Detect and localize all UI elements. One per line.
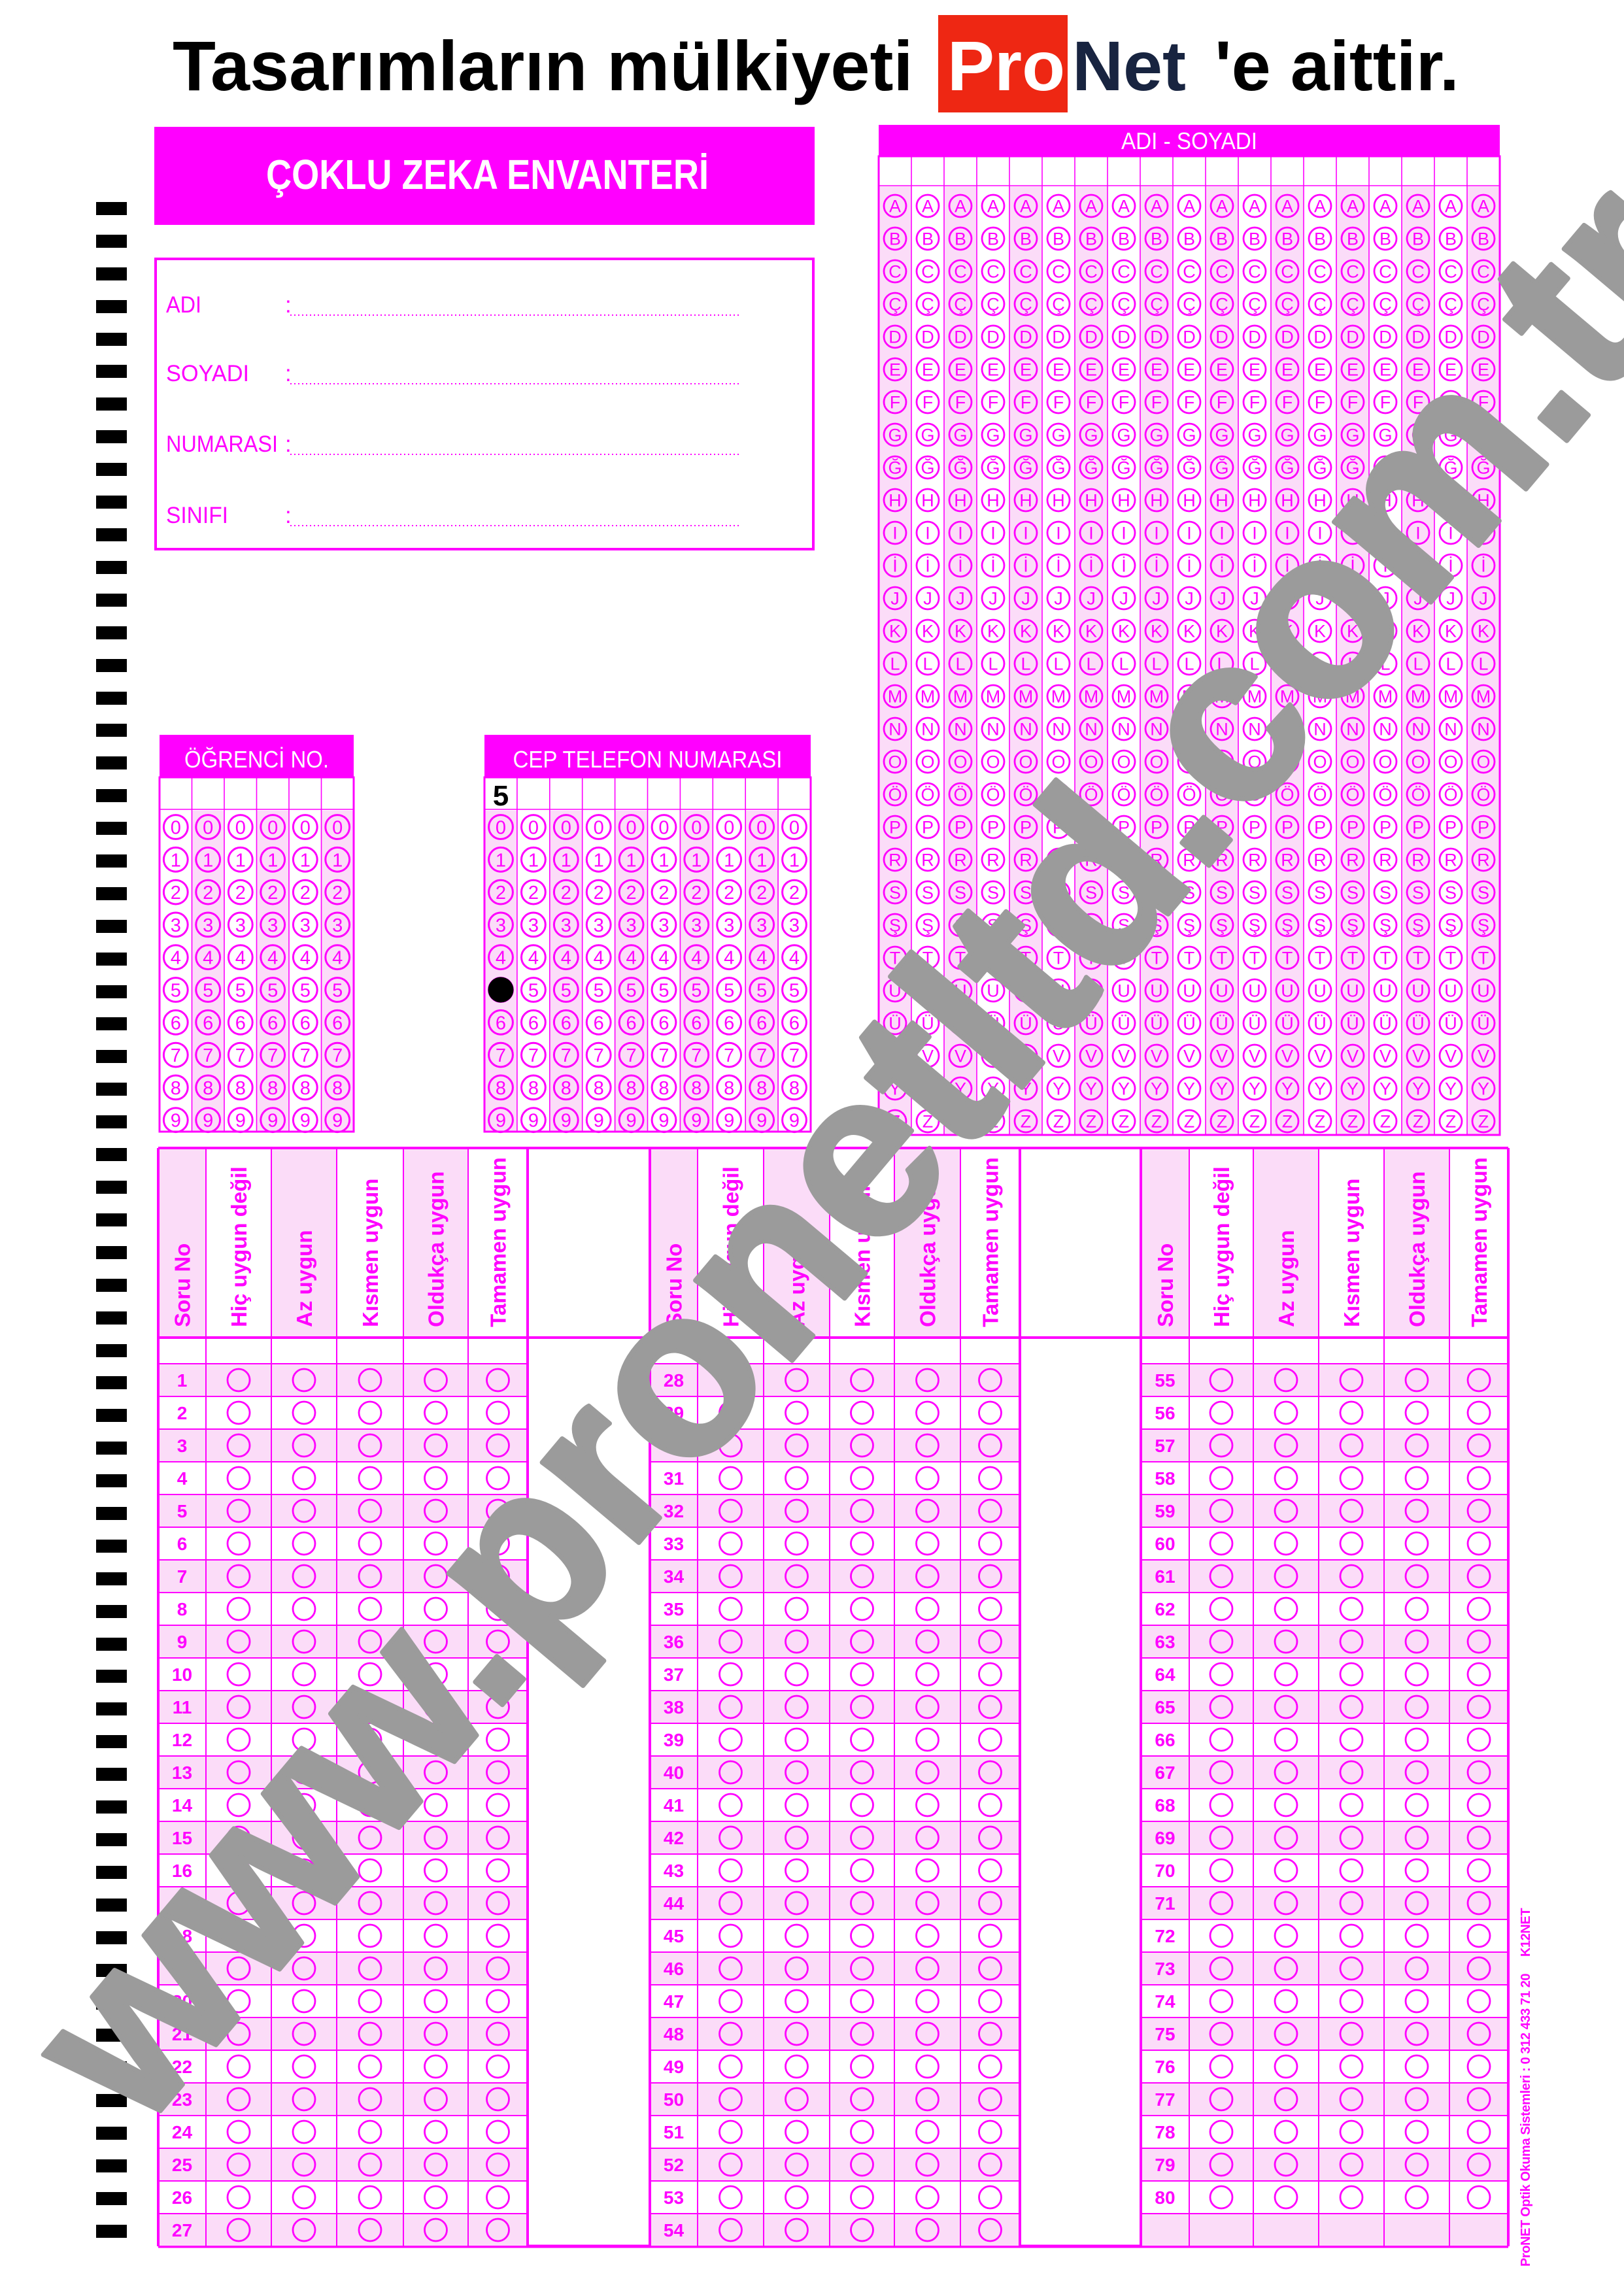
svg-text:K: K (1053, 622, 1064, 641)
svg-text::: : (285, 431, 292, 457)
svg-text:V: V (1151, 1047, 1162, 1066)
svg-text:26: 26 (172, 2187, 192, 2208)
svg-text:3: 3 (626, 915, 637, 936)
svg-text:7: 7 (594, 1045, 604, 1066)
svg-text:C: C (1346, 262, 1359, 282)
svg-text:O: O (1411, 752, 1425, 772)
svg-text:Z: Z (1184, 1112, 1195, 1132)
svg-text:Ç: Ç (1019, 295, 1032, 314)
svg-text:2: 2 (177, 1403, 188, 1423)
svg-text:I: I (1154, 524, 1159, 543)
svg-text:L: L (988, 654, 998, 674)
svg-text:7: 7 (724, 1045, 734, 1066)
svg-text:Ş: Ş (1281, 916, 1293, 936)
svg-text:S: S (1314, 883, 1326, 903)
svg-text:A: A (1281, 197, 1293, 216)
svg-text:Ö: Ö (1378, 785, 1392, 805)
svg-text:I: I (990, 524, 996, 543)
svg-text:A: A (1118, 197, 1130, 216)
svg-text:6: 6 (496, 1013, 506, 1034)
svg-text:H: H (1150, 491, 1163, 511)
svg-text:A: A (1379, 197, 1391, 216)
svg-text:50: 50 (664, 2089, 684, 2110)
svg-text:Z: Z (1446, 1112, 1457, 1132)
svg-text:T: T (1217, 949, 1228, 968)
svg-text:9: 9 (691, 1111, 702, 1132)
svg-text:D: D (921, 328, 934, 347)
svg-text:U: U (1313, 981, 1327, 1001)
svg-text:47: 47 (664, 1991, 684, 2012)
svg-text:0: 0 (626, 818, 637, 839)
svg-text:U: U (1379, 981, 1392, 1001)
svg-text:Ö: Ö (921, 785, 934, 805)
svg-text:4: 4 (528, 948, 539, 969)
svg-text:B: B (1347, 229, 1359, 249)
svg-text:7: 7 (561, 1045, 571, 1066)
svg-text:39: 39 (664, 1730, 684, 1750)
svg-text:Ö: Ö (1476, 785, 1490, 805)
svg-text:SOYADI: SOYADI (166, 361, 249, 386)
svg-text:E: E (889, 360, 901, 380)
svg-text:T: T (1413, 949, 1424, 968)
svg-text:C: C (1379, 262, 1392, 282)
svg-text:U: U (1477, 981, 1490, 1001)
svg-text:1: 1 (528, 850, 539, 871)
svg-text:7: 7 (626, 1045, 637, 1066)
svg-text:80: 80 (1155, 2187, 1175, 2208)
svg-text:62: 62 (1155, 1599, 1175, 1619)
svg-text:D: D (1117, 328, 1130, 347)
svg-text:Ğ: Ğ (1051, 458, 1065, 478)
svg-text:H: H (1215, 491, 1228, 511)
svg-text:9: 9 (203, 1111, 213, 1132)
svg-text:L: L (1021, 654, 1030, 674)
svg-text:G: G (986, 426, 1000, 445)
svg-text:4: 4 (691, 948, 702, 969)
svg-text:H: H (1183, 491, 1196, 511)
svg-text:D: D (1248, 328, 1261, 347)
svg-text:8: 8 (594, 1078, 604, 1099)
svg-text:D: D (1215, 328, 1228, 347)
svg-text:0: 0 (267, 818, 278, 839)
svg-text:Ü: Ü (1477, 1014, 1490, 1034)
svg-text:Z: Z (1380, 1112, 1391, 1132)
svg-text:5: 5 (658, 981, 669, 1002)
svg-text:Y: Y (1412, 1079, 1424, 1099)
svg-text:L: L (890, 654, 900, 674)
svg-text:0: 0 (171, 818, 181, 839)
svg-text:0: 0 (203, 818, 213, 839)
svg-text:7: 7 (691, 1045, 702, 1066)
svg-text:59: 59 (1155, 1501, 1175, 1521)
svg-text:O: O (1378, 752, 1392, 772)
svg-text:Ü: Ü (1150, 1014, 1163, 1034)
svg-text:V: V (1412, 1047, 1424, 1066)
svg-text:78: 78 (1155, 2122, 1175, 2142)
svg-text:K: K (889, 622, 901, 641)
svg-text:79: 79 (1155, 2155, 1175, 2175)
svg-text:7: 7 (177, 1566, 188, 1587)
svg-text:Ğ: Ğ (888, 458, 902, 478)
svg-text:71: 71 (1155, 1893, 1175, 1914)
svg-text:5: 5 (493, 780, 509, 812)
svg-text:6: 6 (756, 1013, 767, 1034)
svg-text:H: H (921, 491, 934, 511)
svg-text:70: 70 (1155, 1861, 1175, 1881)
svg-text:8: 8 (626, 1078, 637, 1099)
svg-text:A: A (955, 197, 966, 216)
svg-text:Net: Net (1072, 26, 1186, 105)
svg-text:O: O (921, 752, 934, 772)
svg-text:72: 72 (1155, 1926, 1175, 1946)
svg-text:Y: Y (1445, 1079, 1457, 1099)
svg-text:Ö: Ö (953, 785, 967, 805)
svg-text:75: 75 (1155, 2024, 1175, 2044)
svg-text:56: 56 (1155, 1403, 1175, 1423)
svg-text:R: R (1444, 851, 1457, 870)
svg-text:Ş: Ş (1347, 916, 1359, 936)
svg-text:1: 1 (561, 850, 571, 871)
svg-text:Tamamen uygun: Tamamen uygun (1467, 1157, 1491, 1327)
svg-text:B: B (1118, 229, 1130, 249)
svg-text:I: I (925, 524, 930, 543)
svg-text:2: 2 (300, 883, 311, 903)
svg-text:J: J (989, 589, 998, 609)
svg-text:A: A (1053, 197, 1064, 216)
svg-text:Ş: Ş (1445, 916, 1457, 936)
svg-text:36: 36 (664, 1632, 684, 1652)
svg-text:44: 44 (664, 1893, 685, 1914)
svg-text:0: 0 (789, 818, 800, 839)
svg-text:3: 3 (267, 915, 278, 936)
svg-text:Ç: Ç (1183, 295, 1196, 314)
svg-text:1: 1 (658, 850, 669, 871)
svg-text:I: I (1187, 524, 1192, 543)
svg-text:B: B (922, 229, 934, 249)
svg-text:D: D (1019, 328, 1032, 347)
svg-text:2: 2 (626, 883, 637, 903)
svg-text:3: 3 (235, 915, 246, 936)
svg-text:ÇOKLU ZEKA ENVANTERİ: ÇOKLU ZEKA ENVANTERİ (266, 151, 709, 198)
svg-text:Y: Y (1118, 1079, 1130, 1099)
svg-text:G: G (1019, 426, 1032, 445)
svg-text:C: C (1183, 262, 1196, 282)
svg-text:C: C (1313, 262, 1327, 282)
svg-text:64: 64 (1155, 1664, 1176, 1685)
svg-text:L: L (955, 654, 965, 674)
svg-text:3: 3 (203, 915, 213, 936)
svg-text:Y: Y (1379, 1079, 1391, 1099)
svg-text:0: 0 (594, 818, 604, 839)
svg-text:J: J (1119, 589, 1128, 609)
svg-text:İ: İ (1121, 556, 1126, 576)
svg-text:C: C (1248, 262, 1261, 282)
svg-text:S: S (1281, 883, 1293, 903)
svg-text:8: 8 (177, 1599, 188, 1619)
svg-text:R: R (1313, 851, 1327, 870)
svg-text:5: 5 (171, 981, 181, 1002)
svg-text:Ş: Ş (1314, 916, 1326, 936)
svg-text:2: 2 (756, 883, 767, 903)
svg-text:D: D (954, 328, 967, 347)
svg-text:38: 38 (664, 1697, 684, 1717)
svg-text:8: 8 (300, 1078, 311, 1099)
svg-text:2: 2 (267, 883, 278, 903)
svg-text:40: 40 (664, 1763, 684, 1783)
svg-text:I: I (1056, 524, 1061, 543)
svg-text:K: K (1020, 622, 1032, 641)
svg-text:1: 1 (691, 850, 702, 871)
svg-text:Ç: Ç (1150, 295, 1163, 314)
svg-text:5: 5 (332, 981, 343, 1002)
svg-text:6: 6 (594, 1013, 604, 1034)
svg-text:Z: Z (1119, 1112, 1130, 1132)
svg-text:7: 7 (203, 1045, 213, 1066)
svg-text:J: J (923, 589, 932, 609)
svg-text:B: B (889, 229, 901, 249)
svg-text:Ğ: Ğ (1117, 458, 1130, 478)
svg-text:2: 2 (724, 883, 734, 903)
svg-text:3: 3 (332, 915, 343, 936)
svg-text:R: R (1412, 851, 1425, 870)
svg-text:Ö: Ö (888, 785, 902, 805)
svg-text:11: 11 (173, 1697, 192, 1717)
svg-text:45: 45 (664, 1926, 684, 1946)
svg-text:İ: İ (1089, 556, 1094, 576)
svg-text:F: F (955, 393, 966, 413)
svg-text:Ç: Ç (1215, 295, 1228, 314)
svg-text:Ü: Ü (1313, 1014, 1327, 1034)
svg-text:F: F (1151, 393, 1162, 413)
svg-text:2: 2 (528, 883, 539, 903)
svg-text:Z: Z (1249, 1112, 1260, 1132)
svg-text:H: H (888, 491, 902, 511)
svg-text:0: 0 (496, 818, 506, 839)
svg-text:G: G (1084, 426, 1098, 445)
svg-text:G: G (953, 426, 967, 445)
svg-text:8: 8 (724, 1078, 734, 1099)
svg-text:B: B (1183, 229, 1195, 249)
svg-text:F: F (1282, 393, 1293, 413)
svg-text:Ü: Ü (1248, 1014, 1261, 1034)
svg-text:K: K (955, 622, 966, 641)
svg-text:8: 8 (203, 1078, 213, 1099)
svg-text:0: 0 (528, 818, 539, 839)
svg-text:J: J (1087, 589, 1096, 609)
svg-text:S: S (1347, 883, 1359, 903)
svg-text:Tasarımların mülkiyeti: Tasarımların mülkiyeti (173, 26, 913, 105)
svg-text:'e aittir.: 'e aittir. (1215, 26, 1459, 105)
svg-text:7: 7 (332, 1045, 343, 1066)
svg-text:B: B (1053, 229, 1064, 249)
svg-text:B: B (1020, 229, 1032, 249)
svg-text:0: 0 (756, 818, 767, 839)
svg-text:8: 8 (171, 1078, 181, 1099)
svg-text:V: V (1478, 1047, 1489, 1066)
svg-text:B: B (987, 229, 999, 249)
svg-text:R: R (888, 851, 902, 870)
svg-text:Ç: Ç (1085, 295, 1098, 314)
svg-text:P: P (1379, 818, 1391, 837)
svg-text:E: E (1085, 360, 1097, 380)
svg-text:5: 5 (203, 981, 213, 1002)
svg-text:9: 9 (658, 1111, 669, 1132)
svg-text:Z: Z (1478, 1112, 1489, 1132)
svg-text:V: V (1379, 1047, 1391, 1066)
svg-text:ADI - SOYADI: ADI - SOYADI (1121, 127, 1257, 154)
svg-text:İ: İ (892, 556, 898, 576)
svg-text:1: 1 (724, 850, 734, 871)
svg-text:E: E (1249, 360, 1260, 380)
svg-text:M: M (1444, 687, 1459, 707)
svg-text:52: 52 (664, 2155, 684, 2175)
svg-text:T: T (1347, 949, 1359, 968)
svg-text:2: 2 (203, 883, 213, 903)
svg-text:R: R (1346, 851, 1359, 870)
svg-text:5: 5 (561, 981, 571, 1002)
svg-text:U: U (1412, 981, 1425, 1001)
svg-text:49: 49 (664, 2057, 684, 2077)
svg-text:8: 8 (267, 1078, 278, 1099)
svg-text:C: C (1281, 262, 1294, 282)
svg-text:5: 5 (594, 981, 604, 1002)
svg-text:F: F (922, 393, 934, 413)
svg-text:Hiç uygun değil: Hiç uygun değil (1210, 1166, 1234, 1327)
svg-text:E: E (1118, 360, 1130, 380)
svg-text:L: L (922, 654, 932, 674)
svg-text:E: E (1020, 360, 1032, 380)
svg-text:J: J (956, 589, 965, 609)
svg-text:60: 60 (1155, 1534, 1175, 1554)
svg-text:G: G (1247, 426, 1261, 445)
svg-text:D: D (1183, 328, 1196, 347)
svg-text:N: N (987, 720, 1000, 739)
svg-text:2: 2 (561, 883, 571, 903)
svg-text:63: 63 (1155, 1632, 1175, 1652)
svg-text:5: 5 (528, 981, 539, 1002)
svg-text:9: 9 (528, 1111, 539, 1132)
svg-text:61: 61 (1155, 1566, 1175, 1587)
svg-text:İ: İ (1023, 556, 1028, 576)
svg-text:İ: İ (958, 556, 963, 576)
svg-text:3: 3 (724, 915, 734, 936)
svg-text:76: 76 (1155, 2057, 1175, 2077)
svg-text:8: 8 (691, 1078, 702, 1099)
svg-text:N: N (1444, 720, 1457, 739)
svg-text:A: A (1445, 197, 1457, 216)
svg-text:Ü: Ü (1215, 1014, 1228, 1034)
svg-text:D: D (1052, 328, 1065, 347)
svg-text:Ç: Ç (1052, 295, 1065, 314)
svg-text:U: U (1215, 981, 1228, 1001)
svg-text:A: A (1412, 197, 1424, 216)
svg-text:H: H (1117, 491, 1130, 511)
svg-text:D: D (1150, 328, 1163, 347)
svg-text:F: F (1184, 393, 1195, 413)
svg-text:O: O (986, 752, 1000, 772)
svg-text:T: T (1282, 949, 1293, 968)
svg-text:9: 9 (561, 1111, 571, 1132)
svg-text:H: H (987, 491, 1000, 511)
svg-text:G: G (888, 426, 902, 445)
svg-text:J: J (1054, 589, 1063, 609)
svg-text:CEP TELEFON NUMARASI: CEP TELEFON NUMARASI (513, 746, 783, 773)
svg-text:55: 55 (1155, 1370, 1175, 1391)
svg-text:4: 4 (561, 948, 571, 969)
svg-text:6: 6 (177, 1534, 188, 1554)
svg-text:V: V (1347, 1047, 1359, 1066)
svg-text:G: G (921, 426, 934, 445)
svg-text:T: T (1446, 949, 1457, 968)
svg-text:O: O (888, 752, 902, 772)
svg-text:9: 9 (626, 1111, 637, 1132)
svg-text:H: H (954, 491, 967, 511)
svg-text:A: A (987, 197, 999, 216)
svg-text:N: N (1412, 720, 1425, 739)
svg-text:4: 4 (177, 1468, 188, 1489)
svg-text:E: E (922, 360, 934, 380)
svg-text:P: P (889, 818, 901, 837)
svg-text:O: O (953, 752, 967, 772)
svg-text:5: 5 (177, 1501, 188, 1521)
svg-text:C: C (954, 262, 967, 282)
svg-text:54: 54 (664, 2220, 685, 2240)
svg-text:F: F (1217, 393, 1228, 413)
svg-text:Tamamen uygun: Tamamen uygun (486, 1157, 511, 1327)
svg-text:2: 2 (332, 883, 343, 903)
svg-text:Ç: Ç (987, 295, 1000, 314)
svg-text:M: M (921, 687, 936, 707)
svg-text:C: C (1085, 262, 1098, 282)
svg-text:E: E (1314, 360, 1326, 380)
svg-text:1: 1 (203, 850, 213, 871)
svg-text:6: 6 (203, 1013, 213, 1034)
svg-text:Oldukça uygun: Oldukça uygun (1405, 1172, 1429, 1327)
svg-text:Z: Z (1217, 1112, 1228, 1132)
svg-text:9: 9 (332, 1111, 343, 1132)
svg-text:Ç: Ç (921, 295, 934, 314)
svg-text:D: D (1281, 328, 1294, 347)
svg-text:Ç: Ç (1248, 295, 1261, 314)
svg-text:0: 0 (332, 818, 343, 839)
svg-text:V: V (1183, 1047, 1195, 1066)
svg-text:Z: Z (1315, 1112, 1326, 1132)
svg-text:1: 1 (626, 850, 637, 871)
svg-text:1: 1 (177, 1370, 188, 1391)
svg-text:4: 4 (626, 948, 637, 969)
svg-text:3: 3 (789, 915, 800, 936)
svg-text:6: 6 (267, 1013, 278, 1034)
svg-text:2: 2 (496, 883, 506, 903)
svg-text:5: 5 (267, 981, 278, 1002)
svg-text:C: C (987, 262, 1000, 282)
svg-text:Soru No: Soru No (1153, 1243, 1177, 1327)
svg-text:8: 8 (528, 1078, 539, 1099)
svg-text:57: 57 (1155, 1436, 1175, 1456)
svg-text:V: V (1249, 1047, 1260, 1066)
svg-text:2: 2 (235, 883, 246, 903)
svg-text:H: H (1019, 491, 1032, 511)
svg-text:İ: İ (925, 556, 930, 576)
svg-text:8: 8 (658, 1078, 669, 1099)
svg-text:77: 77 (1155, 2089, 1175, 2110)
svg-text:P: P (1478, 818, 1489, 837)
svg-text:4: 4 (789, 948, 800, 969)
svg-text:E: E (955, 360, 966, 380)
svg-text:7: 7 (300, 1045, 311, 1066)
svg-text:10: 10 (172, 1664, 192, 1685)
svg-text:Ç: Ç (888, 295, 902, 314)
